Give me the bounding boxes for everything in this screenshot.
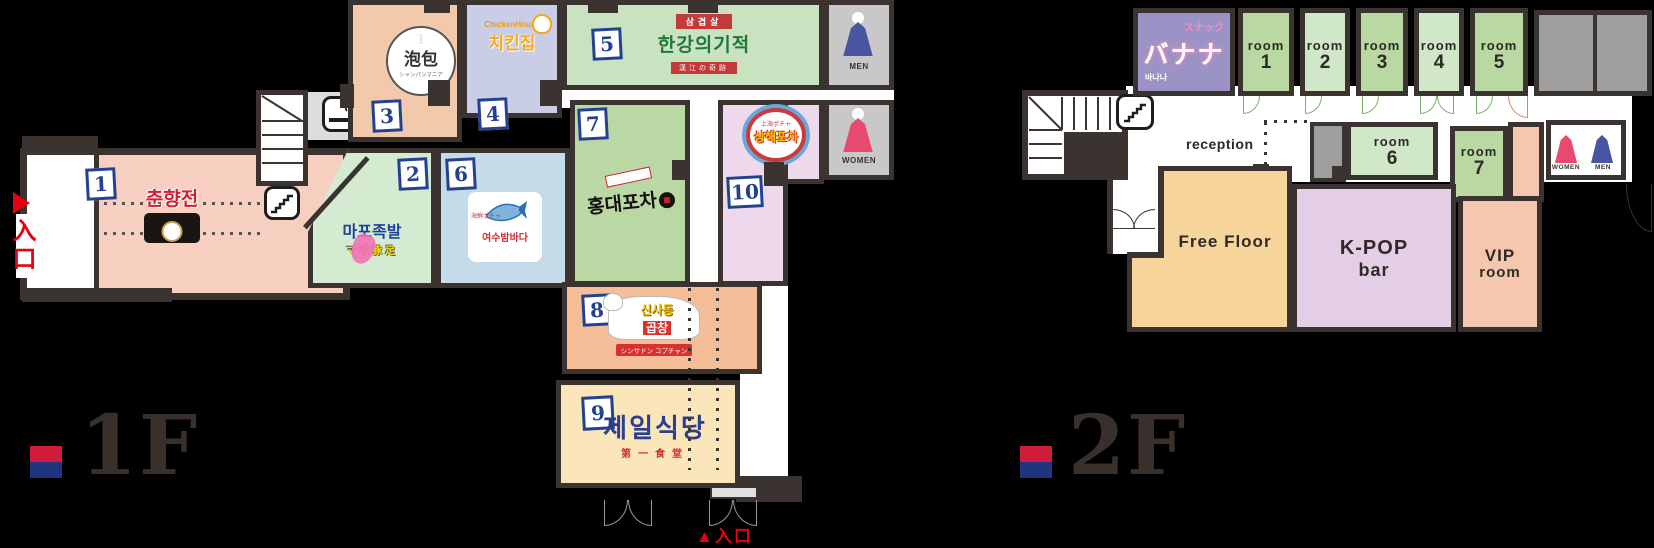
room2f-4: room4 — [1414, 8, 1464, 96]
dotted-line — [716, 288, 719, 470]
room-10-name: 상해포차 — [750, 128, 802, 145]
restroom-men-label: MEN — [824, 62, 894, 71]
wall-segment — [688, 0, 718, 13]
fish-icon — [481, 195, 529, 229]
room-6-sub: 海鮮ポチャ — [471, 214, 501, 221]
stairwell — [1022, 90, 1128, 180]
women-restroom-icon — [842, 108, 874, 152]
vip-corridor — [1508, 122, 1544, 202]
restroom-women-label: WOMEN — [824, 156, 894, 165]
kpop-bar: K-POP bar — [1292, 184, 1456, 332]
taegeuk-flag-icon — [1020, 446, 1052, 478]
wall-segment — [764, 162, 784, 186]
wall-segment — [340, 84, 354, 108]
restroom-women-label: WOMEN — [1544, 164, 1588, 171]
room-8-name-top: 신사동 — [640, 303, 673, 317]
chicken-icon — [532, 14, 552, 34]
stairs-icon — [264, 186, 300, 220]
snack-sub: 바나나 — [1145, 72, 1167, 83]
floor1-label: 1F — [80, 398, 199, 494]
floor2-label: 2F — [1068, 398, 1187, 494]
room-3-name: 泡包 — [388, 45, 454, 70]
room-5-band-top: 삼겹살 — [676, 14, 733, 29]
room-7-number-badge: 7 — [577, 107, 609, 141]
women-restroom-icon — [1554, 126, 1578, 162]
entrance-arrow-icon — [13, 192, 30, 214]
service-room — [1534, 10, 1652, 96]
door-arc — [1626, 184, 1652, 232]
door-arc — [628, 500, 652, 526]
entrance-side-label: 入口 — [4, 218, 39, 274]
room2f-2: room2 — [1300, 8, 1350, 96]
room-2-number-badge: 2 — [397, 157, 429, 191]
room-10-logo: 上海ポチャ 상해포차 — [742, 104, 810, 166]
room2f-6: room6 — [1346, 122, 1438, 180]
floor-guide-map: { "palette": { "background": "#000000", … — [0, 0, 1654, 548]
room-4-number-badge: 4 — [477, 97, 509, 131]
snack-banana: スナック バナナ 바나나 — [1133, 8, 1235, 96]
room-3-sub: シャンパンマニア — [391, 70, 450, 78]
reception-label: reception — [1186, 136, 1266, 152]
cow-icon: 신사동 곱창 — [608, 296, 700, 340]
men-restroom-icon — [1590, 126, 1614, 162]
wall-segment — [1127, 252, 1164, 258]
room2f-5: room5 — [1470, 8, 1528, 96]
snack-type: スナック — [1184, 19, 1224, 34]
snack-name: バナナ — [1138, 35, 1230, 71]
room-1-number-badge: 1 — [85, 167, 117, 201]
wall-segment — [1332, 166, 1346, 182]
wall-segment — [588, 0, 618, 13]
room-9-logo: 제일식당 第一食堂 — [580, 408, 730, 460]
men-restroom-icon — [842, 12, 874, 58]
room-6-logo: 海鮮ポチャ 여수밤바다 — [468, 192, 542, 262]
wall-segment — [22, 288, 172, 302]
taegeuk-flag-icon — [30, 446, 62, 478]
room-9-name: 제일식당 — [580, 408, 730, 445]
room-8-name-bottom: 곱창 — [643, 321, 671, 335]
wall-segment — [22, 136, 98, 150]
room-1-name: 춘향전 — [120, 184, 224, 211]
room-10-top: 上海ポチャ — [750, 119, 802, 128]
door-threshold — [710, 486, 758, 499]
room-5-number-badge: 5 — [591, 27, 623, 61]
wall-segment — [428, 80, 450, 106]
room-5-logo: 삼겹살 한강의기적 漢江の奇跡 — [645, 12, 763, 75]
vip-room: VIP room — [1458, 196, 1542, 332]
room-5-name: 한강의기적 — [645, 30, 763, 57]
room2f-1: room1 — [1238, 8, 1294, 96]
corridor — [686, 84, 720, 302]
room-8-band: シンサドン コプチャン — [616, 344, 693, 356]
room-1-logo: 춘향전 — [120, 184, 224, 243]
wall-segment — [672, 160, 690, 180]
dotted-line — [688, 288, 691, 470]
wall-segment — [1593, 15, 1597, 91]
room-9-sub: 第一食堂 — [580, 445, 730, 460]
wall-segment — [540, 80, 562, 106]
dotted-line — [1264, 120, 1312, 123]
entrance-side-marker: 入口 — [4, 192, 38, 274]
entrance-bottom-label: ▲入口 — [696, 522, 786, 547]
room2f-3: room3 — [1356, 8, 1408, 96]
room-6-name: 여수밤바다 — [468, 229, 542, 244]
room-6-number-badge: 6 — [445, 157, 477, 191]
room-3-logo-mark: ❕ — [388, 34, 454, 45]
room-5-band-bottom: 漢江の奇跡 — [671, 62, 737, 74]
stairwell — [256, 90, 308, 186]
stairs-icon — [1116, 94, 1154, 130]
room-3-number-badge: 3 — [371, 99, 403, 133]
room-10-number-badge: 10 — [726, 175, 764, 209]
room2f-7: room7 — [1450, 126, 1508, 202]
free-floor-label: Free Floor — [1160, 232, 1290, 252]
door-arc — [604, 500, 628, 526]
restroom-men-label: MEN — [1588, 164, 1618, 171]
drum-sign-icon — [144, 213, 200, 243]
wall-segment — [424, 0, 450, 13]
